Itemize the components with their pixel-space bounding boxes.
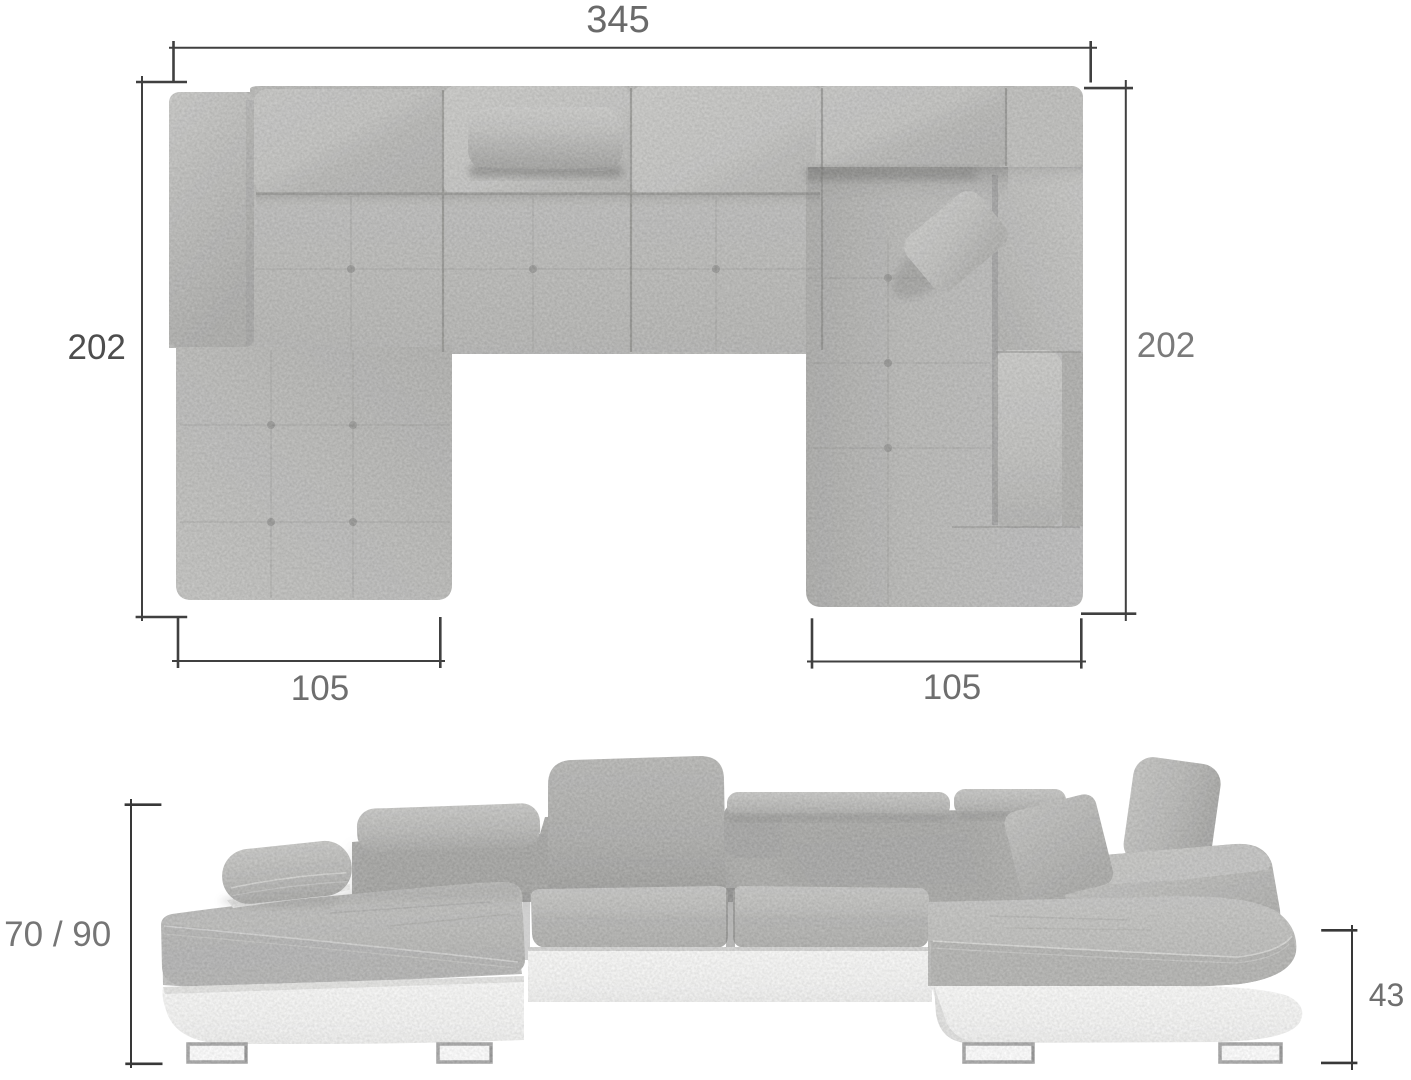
svg-text:70 / 90: 70 / 90	[4, 915, 111, 954]
svg-text:345: 345	[586, 0, 649, 41]
svg-text:202: 202	[67, 328, 125, 367]
svg-text:105: 105	[291, 669, 349, 708]
svg-text:43: 43	[1369, 977, 1405, 1013]
svg-text:105: 105	[923, 668, 981, 707]
svg-text:202: 202	[1137, 326, 1195, 365]
